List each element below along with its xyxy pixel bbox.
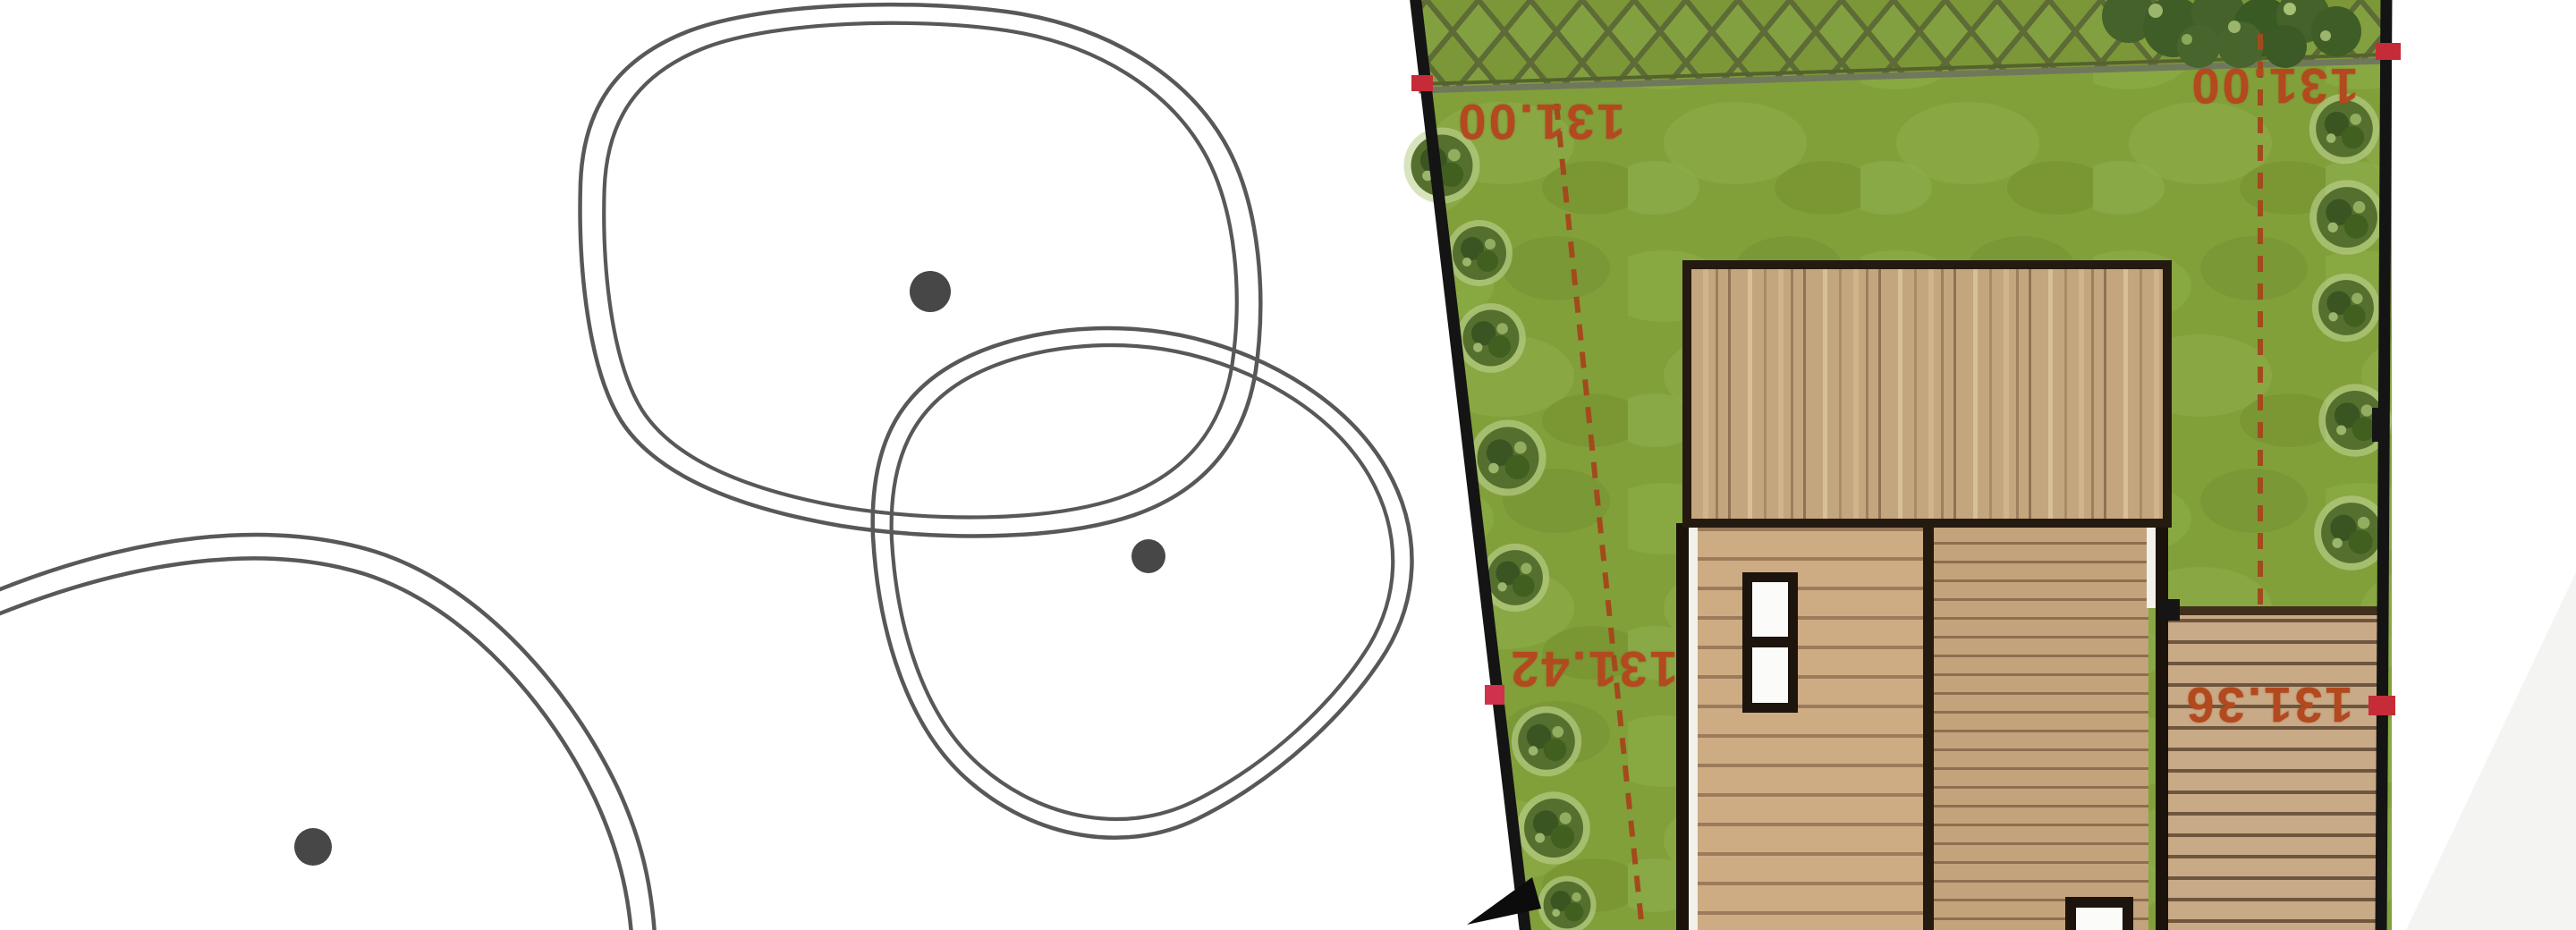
elevation-label: 131.36 <box>2134 676 2402 733</box>
terrace-corner-tick <box>2158 599 2180 621</box>
tree-icon <box>2312 274 2380 342</box>
deck-left-section <box>1698 523 1923 930</box>
terrace-top-edge <box>2168 606 2381 615</box>
section-divider <box>1923 523 1934 930</box>
adjacent-area-shading <box>2406 572 2576 930</box>
tree-trunk-dot <box>1131 539 1165 573</box>
terrace-deck <box>2168 606 2381 930</box>
tree-icon <box>1446 220 1513 286</box>
tree-canopy-outlines <box>0 4 1412 930</box>
survey-marker <box>1411 75 1433 91</box>
elevation-label: 131.00 <box>1406 93 1674 150</box>
deck-right-section <box>1934 523 2148 930</box>
site-boundary-right <box>2381 0 2386 930</box>
tree-canopy-a <box>580 4 1261 536</box>
tree-icon <box>1512 706 1581 776</box>
tree-icon <box>1470 419 1546 495</box>
tree-icon <box>2309 180 2385 255</box>
site-plan-drawing <box>0 0 2576 930</box>
wall-gap-left <box>1689 523 1698 930</box>
boundary-post-tick <box>2372 408 2388 442</box>
roof-area <box>1687 265 2167 523</box>
elevation-label: 131.42 <box>1459 640 1727 697</box>
bottom-window <box>2065 897 2133 930</box>
tree-canopy-b <box>873 328 1412 838</box>
tree-trunk-dots <box>294 271 1165 866</box>
tree-icon <box>1517 791 1589 864</box>
tree-trunk-dot <box>294 828 332 866</box>
elevation-label: 131.00 <box>2140 57 2408 114</box>
wall-edge-left <box>1676 523 1689 930</box>
site-plan-canvas: 131.00 131.00 131.42 131.36 <box>0 0 2576 930</box>
tree-icon <box>1456 303 1526 373</box>
skylight-window <box>1742 572 1798 713</box>
tree-canopy-c <box>0 535 655 930</box>
wall-gap-right <box>2147 523 2156 608</box>
tree-trunk-dot <box>910 271 951 312</box>
